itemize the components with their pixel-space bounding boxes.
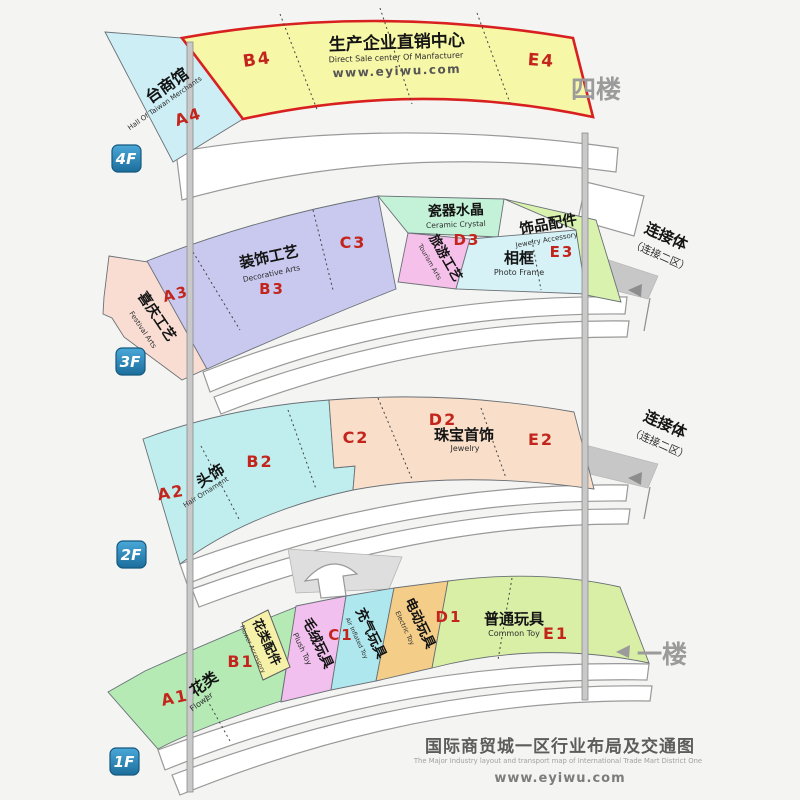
floor-badge-2f-label: 2F xyxy=(121,546,142,564)
photo-frame-cn: 相框 xyxy=(504,249,534,267)
floor-badge-1f: 1F xyxy=(110,748,139,775)
pole-right xyxy=(582,133,588,700)
common-toy-en: Common Toy xyxy=(488,629,540,638)
floor-map-svg: 台商馆 Hall Of Taiwan Merchants A4 B4 生产企业直… xyxy=(0,0,800,800)
floor-badge-2f: 2F xyxy=(117,541,146,568)
code-e3: E3 xyxy=(550,243,575,261)
footer-website: www.eyiwu.com xyxy=(494,771,625,786)
code-b2: B2 xyxy=(246,452,273,471)
pole-left xyxy=(187,42,193,792)
floor4-side-label: 四楼 xyxy=(571,75,621,104)
code-e1: E1 xyxy=(543,624,569,643)
connector-pointer-line-3f xyxy=(644,298,650,331)
code-e4: E4 xyxy=(527,50,556,72)
code-b4: B4 xyxy=(242,48,273,72)
photo-frame-en: Photo Frame xyxy=(494,268,544,277)
code-b3: B3 xyxy=(259,280,285,298)
footer: 国际商贸城一区行业布局及交通图 The Major Industry layou… xyxy=(413,736,702,786)
jewelry-cn: 珠宝首饰 xyxy=(434,426,494,444)
connector-pointer-line-2f xyxy=(644,487,650,519)
ceramic-crystal-cn: 瓷器水晶 xyxy=(428,201,485,220)
code-d3: D3 xyxy=(454,231,481,249)
floor-map-page: 台商馆 Hall Of Taiwan Merchants A4 B4 生产企业直… xyxy=(0,0,800,800)
footer-title-cn: 国际商贸城一区行业布局及交通图 xyxy=(425,736,695,757)
floor-badge-3f: 3F xyxy=(116,348,145,375)
floor-badge-3f-label: 3F xyxy=(120,353,141,371)
code-b1: B1 xyxy=(227,652,254,671)
floor-badge-1f-label: 1F xyxy=(114,753,135,771)
common-toy-cn: 普通玩具 xyxy=(484,610,544,628)
floor1-side-label: 一楼 xyxy=(637,640,687,669)
floor-badge-4f: 4F xyxy=(112,145,141,172)
floor-badge-4f-label: 4F xyxy=(115,150,137,168)
code-d1: D1 xyxy=(436,608,463,626)
jewelry-en: Jewelry xyxy=(450,444,480,453)
code-e2: E2 xyxy=(528,430,554,449)
code-c3: C3 xyxy=(340,233,367,252)
footer-title-en: The Major Industry layout and transport … xyxy=(413,757,702,765)
code-c2: C2 xyxy=(343,428,370,447)
